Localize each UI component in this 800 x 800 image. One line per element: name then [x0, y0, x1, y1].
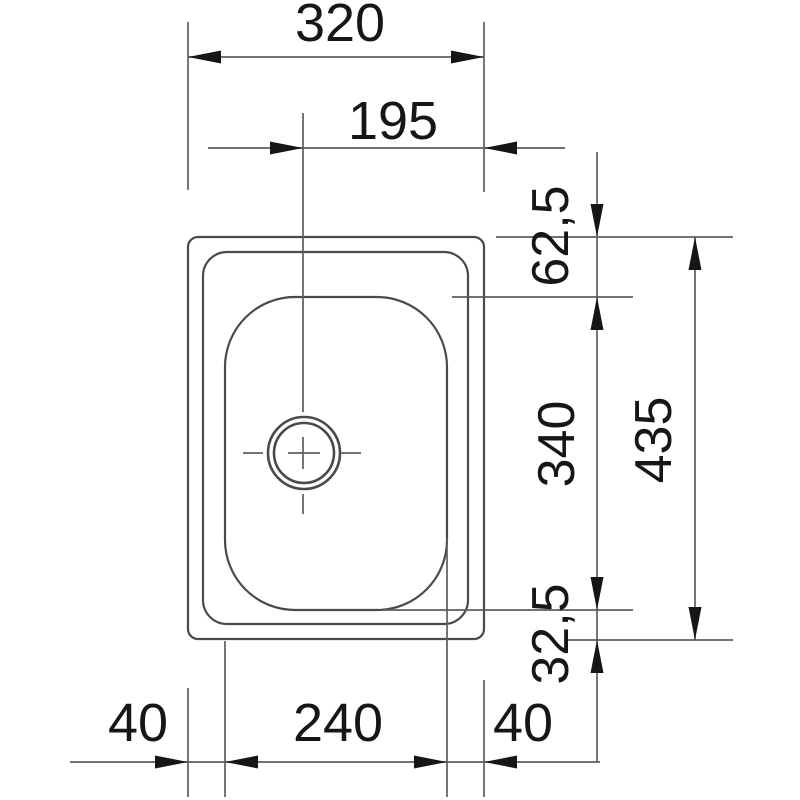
- arrow-195-right: [484, 142, 517, 155]
- dim-label-overall-width: 320: [295, 0, 385, 50]
- arrow-40L-left: [155, 756, 188, 769]
- arrow-435-top: [689, 237, 702, 270]
- arrow-320-left: [188, 51, 221, 64]
- dim-label-bowl-height: 340: [531, 401, 583, 488]
- arrow-62-bottom-340-top: [591, 297, 604, 330]
- arrow-240-left: [225, 756, 258, 769]
- dim-label-left-margin: 40: [108, 696, 168, 750]
- dim-label-top-to-bowl: 62,5: [525, 185, 577, 286]
- arrow-240-right: [414, 756, 447, 769]
- arrow-195-left: [270, 142, 303, 155]
- dim-label-bowl-to-bottom: 32,5: [525, 583, 577, 684]
- technical-drawing: 320 195 62,5 340 435 32,5 40 240 40: [0, 0, 800, 800]
- dim-label-overall-height: 435: [628, 397, 680, 484]
- arrow-435-bottom: [689, 607, 702, 640]
- dim-label-right-margin: 40: [493, 696, 553, 750]
- dim-label-bowl-width: 240: [293, 696, 383, 750]
- arrow-340-bottom-32-top: [591, 577, 604, 610]
- arrow-320-right: [451, 51, 484, 64]
- arrow-62-top: [591, 204, 604, 237]
- dim-label-drain-offset: 195: [348, 94, 438, 148]
- arrow-32-bottom: [591, 640, 604, 673]
- arrow-40R-right: [484, 756, 517, 769]
